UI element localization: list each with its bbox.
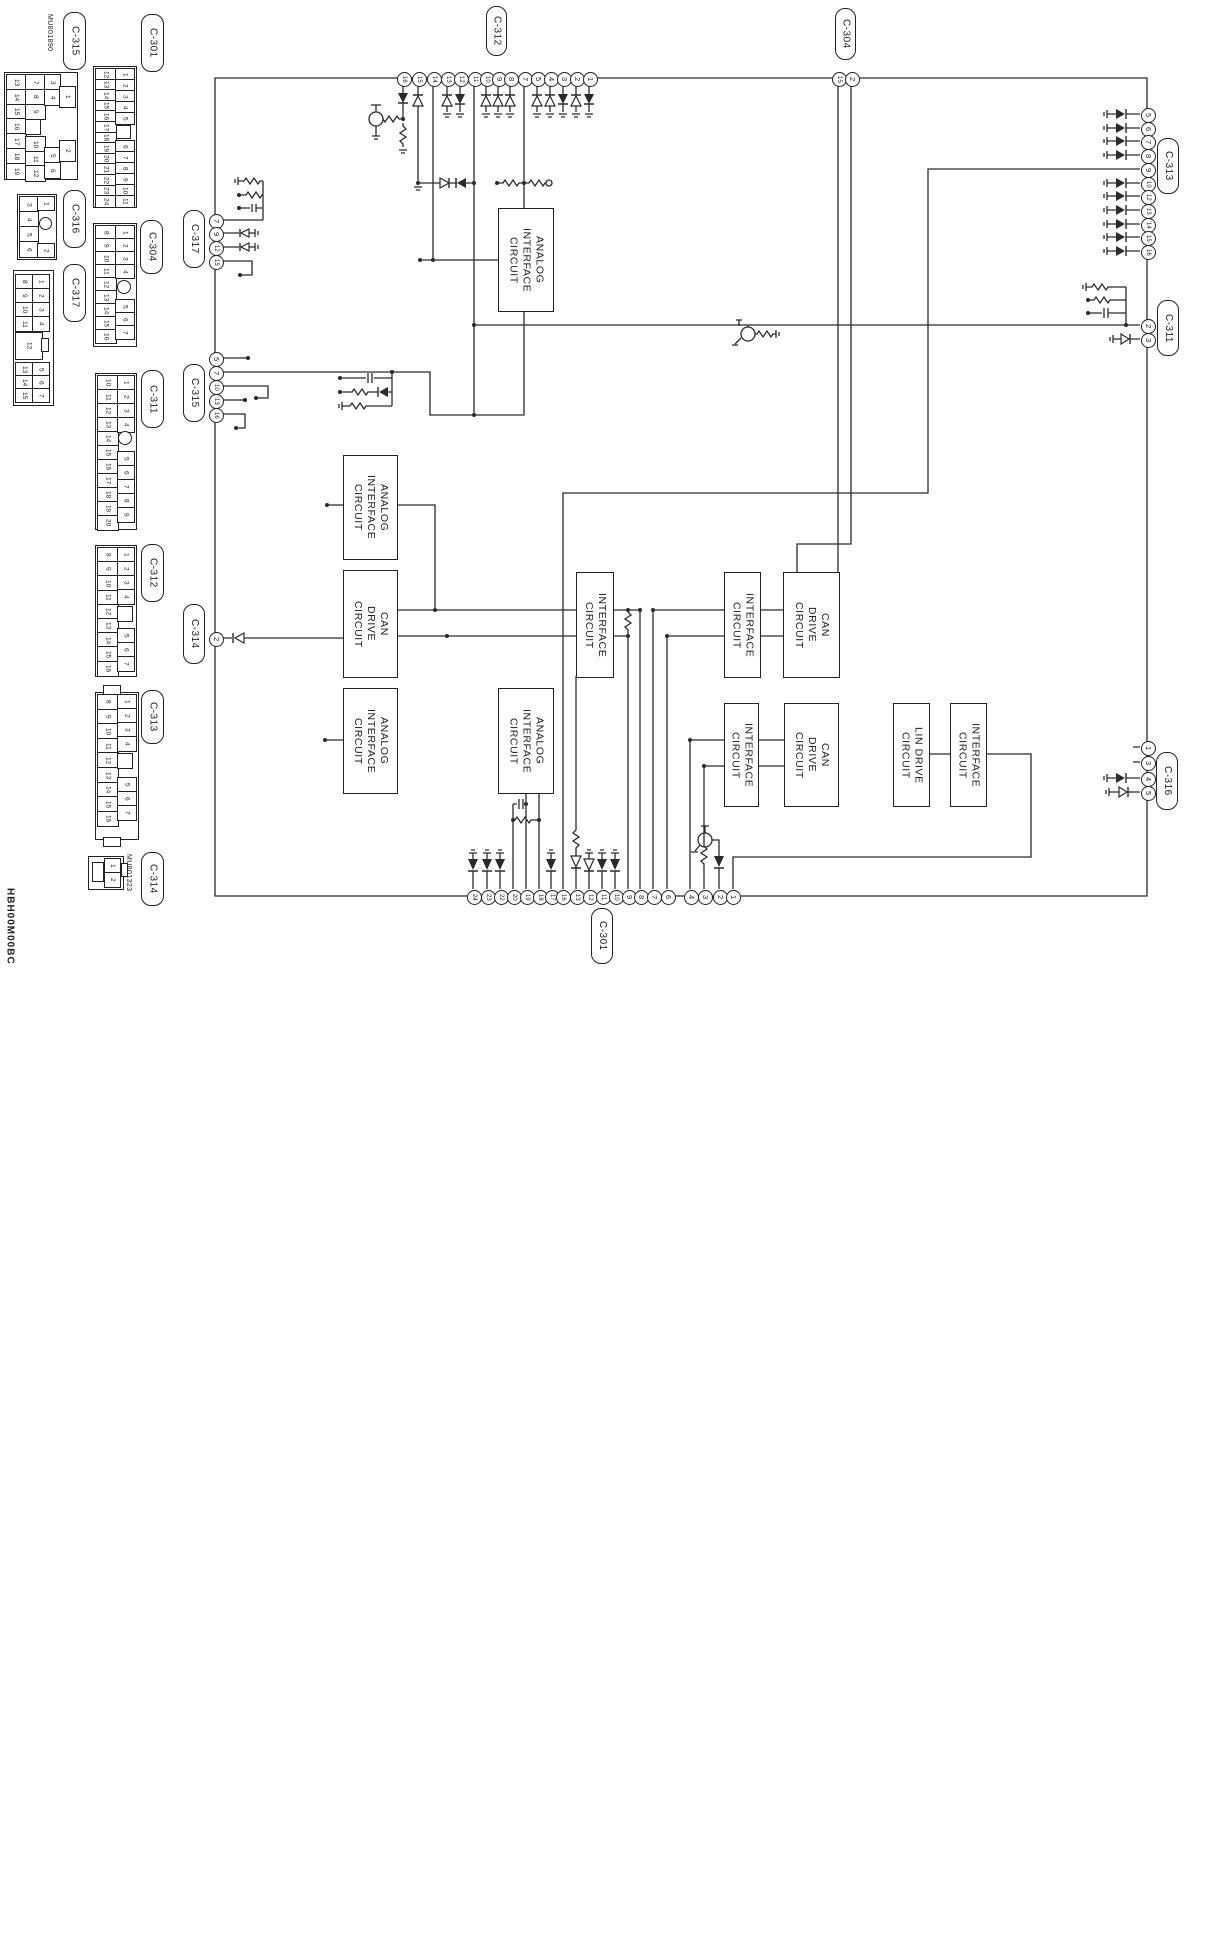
label-text: 16	[1145, 249, 1151, 256]
label-text: 8	[507, 77, 515, 81]
pin-C-313-7: 7	[1141, 135, 1156, 150]
label-text: 11	[600, 894, 606, 900]
label-text: 5	[1144, 791, 1152, 795]
label-text: CAN DRIVE CIRCUIT	[351, 601, 390, 648]
label-text: 4	[1144, 777, 1152, 781]
label-text: 6	[664, 895, 672, 899]
circuit-box-analog-interface-top: ANALOG INTERFACE CIRCUIT	[498, 208, 554, 312]
label-text: 5	[1144, 113, 1152, 117]
label-text: 11	[472, 76, 478, 82]
label-text: 16	[213, 412, 219, 419]
pin-C-313-8: 8	[1141, 149, 1156, 164]
pin-C-311-2: 2	[1141, 319, 1156, 334]
pin-C-301-4: 4	[684, 890, 699, 905]
label-text: 18	[537, 894, 543, 901]
pin-C-312-1: 1	[583, 72, 598, 87]
circuit-box-analog-interface-a1: ANALOG INTERFACE CIRCUIT	[343, 455, 398, 560]
label-text: ANALOG INTERFACE CIRCUIT	[351, 475, 390, 539]
label-text: 7	[212, 371, 220, 375]
label-text: CAN DRIVE CIRCUIT	[792, 732, 831, 779]
label-text: 15	[416, 76, 422, 83]
label-text: 16	[560, 894, 566, 901]
pin-C-313-5: 5	[1141, 108, 1156, 123]
label-text: 10	[213, 384, 219, 391]
pin-C-313-9: 9	[1141, 163, 1156, 178]
label-text: 8	[1144, 154, 1152, 158]
pin-C-315-16: 16	[209, 408, 224, 423]
pin-C-316-4: 4	[1141, 772, 1156, 787]
pin-C-316-5: 5	[1141, 786, 1156, 801]
label-text: INTERFACE CIRCUIT	[955, 723, 981, 787]
pin-C-312-12: 12	[454, 72, 469, 87]
label-text: LIN DRIVE CIRCUIT	[898, 727, 924, 784]
pin-C-315-7: 7	[209, 366, 224, 381]
label-text: 16	[401, 76, 407, 83]
pin-C-312-14: 14	[427, 72, 442, 87]
pin-C-301-1: 1	[726, 890, 741, 905]
pin-C-313-12: 12	[1141, 190, 1156, 205]
circuit-box-interface-c: INTERFACE CIRCUIT	[576, 572, 614, 678]
circuit-box-interface-d1: INTERFACE CIRCUIT	[724, 572, 761, 678]
label-text: 3	[560, 77, 568, 81]
label-text: 10	[1145, 181, 1151, 188]
label-text: 7	[650, 895, 658, 899]
label-text: INTERFACE CIRCUIT	[728, 723, 754, 787]
label-text: 15	[1145, 235, 1151, 242]
label-text: 9	[212, 232, 220, 236]
label-text: 7	[212, 219, 220, 223]
circuit-box-can-drive-a: CAN DRIVE CIRCUIT	[343, 570, 398, 678]
label-text: 24	[471, 894, 477, 901]
circuit-box-can-drive-e2: CAN DRIVE CIRCUIT	[784, 703, 839, 807]
pin-C-317-15: 15	[209, 255, 224, 270]
label-text: 17	[549, 894, 555, 901]
label-text: 5	[212, 357, 220, 361]
label-text: 3	[701, 895, 709, 899]
circuit-box-interface-g: INTERFACE CIRCUIT	[950, 703, 987, 807]
label-text: INTERFACE CIRCUIT	[729, 593, 755, 657]
label-text: INTERFACE CIRCUIT	[582, 593, 608, 657]
pin-C-304-2: 2	[845, 72, 860, 87]
label-text: 19	[524, 894, 530, 901]
label-text: CAN DRIVE CIRCUIT	[792, 602, 831, 649]
pin-C-313-15: 15	[1141, 231, 1156, 246]
label-text: 7	[1144, 140, 1152, 144]
label-text: 9	[1144, 168, 1152, 172]
pin-C-316-3: 3	[1141, 756, 1156, 771]
label-text: 20	[511, 894, 517, 901]
label-text: 12	[213, 245, 219, 252]
label-text: ANALOG INTERFACE CIRCUIT	[351, 709, 390, 773]
pin-C-313-16: 16	[1141, 245, 1156, 260]
pin-C-312-16: 16	[397, 72, 412, 87]
label-text: 15	[836, 76, 842, 83]
label-text: 10	[484, 76, 490, 83]
circuit-box-can-drive-e1: CAN DRIVE CIRCUIT	[783, 572, 840, 678]
label-text: 23	[485, 894, 491, 901]
label-text: 10	[613, 894, 619, 901]
pin-C-312-8: 8	[504, 72, 519, 87]
circuit-box-analog-interface-b: ANALOG INTERFACE CIRCUIT	[498, 688, 554, 794]
pin-C-314-2: 2	[209, 632, 224, 647]
label-text: 2	[212, 637, 220, 641]
label-text: 12	[587, 894, 593, 901]
label-text: 13	[445, 76, 451, 83]
label-text: 1	[729, 895, 737, 899]
label-text: 9	[495, 77, 503, 81]
pin-C-316-1: 1	[1141, 741, 1156, 756]
label-text: 1	[1144, 746, 1152, 750]
pin-C-315-13: 13	[209, 394, 224, 409]
circuit-box-lin-drive: LIN DRIVE CIRCUIT	[893, 703, 930, 807]
pin-C-301-6: 6	[661, 890, 676, 905]
label-text: 2	[1144, 324, 1152, 328]
label-text: 13	[1145, 208, 1151, 215]
label-text: 6	[1144, 127, 1152, 131]
circuit-box-interface-d2: INTERFACE CIRCUIT	[724, 703, 759, 807]
label-text: 5	[534, 77, 542, 81]
pin-C-301-24: 24	[467, 890, 482, 905]
label-text: 4	[687, 895, 695, 899]
label-text: 1	[586, 77, 594, 81]
label-text: 3	[1144, 761, 1152, 765]
label-text: 2	[716, 895, 724, 899]
pin-C-317-9: 9	[209, 227, 224, 242]
label-text: 2	[848, 77, 856, 81]
label-text: 13	[213, 398, 219, 405]
label-text: 7	[521, 77, 529, 81]
label-text: 4	[547, 77, 555, 81]
pin-C-312-15: 15	[412, 72, 427, 87]
label-text: 2	[573, 77, 581, 81]
label-text: 15	[213, 259, 219, 266]
pin-C-301-7: 7	[647, 890, 662, 905]
label-text: 14	[1145, 222, 1151, 229]
circuit-box-analog-interface-a2: ANALOG INTERFACE CIRCUIT	[343, 688, 398, 794]
pin-C-315-10: 10	[209, 380, 224, 395]
pin-C-315-5: 5	[209, 352, 224, 367]
label-text: 3	[1144, 338, 1152, 342]
label-text: 8	[637, 895, 645, 899]
wiring-diagram-page: ANALOG INTERFACE CIRCUITANALOG INTERFACE…	[0, 0, 1210, 1949]
pin-C-317-12: 12	[209, 241, 224, 256]
label-text: 12	[458, 76, 464, 83]
label-text: 9	[625, 895, 633, 899]
label-text: 22	[498, 894, 504, 901]
pin-C-313-13: 13	[1141, 204, 1156, 219]
label-text: 14	[431, 76, 437, 83]
pin-C-311-3: 3	[1141, 333, 1156, 348]
pin-C-301-16: 16	[556, 890, 571, 905]
pin-C-301-3: 3	[698, 890, 713, 905]
label-text: ANALOG INTERFACE CIRCUIT	[506, 709, 545, 773]
label-text: 12	[1145, 194, 1151, 201]
label-text: 13	[574, 894, 580, 901]
label-text: ANALOG INTERFACE CIRCUIT	[506, 228, 545, 292]
schematic-wires	[0, 0, 1210, 990]
